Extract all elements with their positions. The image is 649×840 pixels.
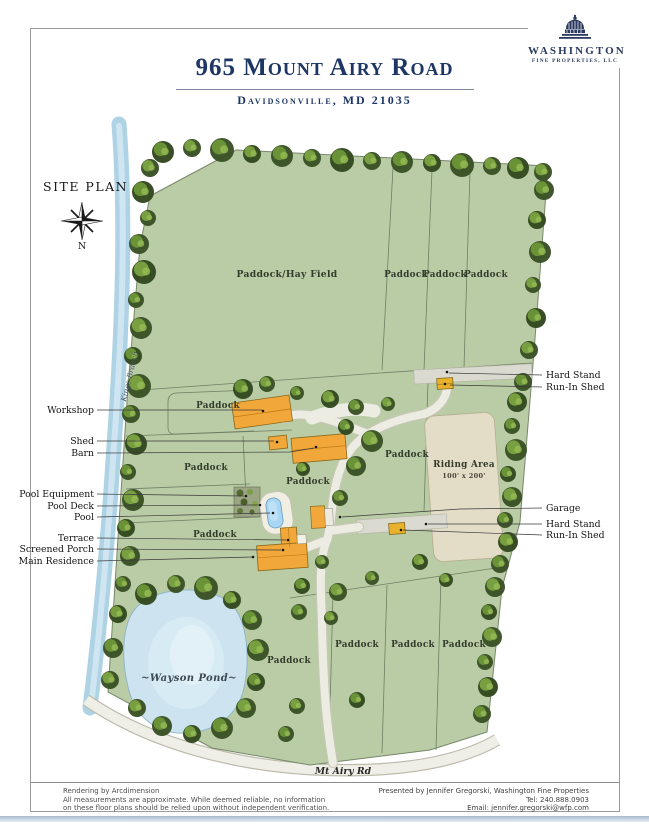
paddock-label: Paddock <box>464 270 508 280</box>
capitol-dome-icon <box>553 14 597 41</box>
tree <box>346 456 366 476</box>
tree <box>122 489 144 511</box>
tree <box>278 726 294 742</box>
paddock-label: Paddock <box>267 656 311 666</box>
tree <box>315 555 329 569</box>
tree <box>514 373 532 391</box>
tree <box>526 308 546 328</box>
compass-rose-icon <box>61 202 103 240</box>
tree <box>412 554 428 570</box>
tree <box>439 573 453 587</box>
hay-field-label: Paddock/Hay Field <box>237 269 338 280</box>
tree <box>125 433 147 455</box>
callout-terrace: Terrace <box>58 533 95 544</box>
tree <box>128 699 146 717</box>
tree <box>365 571 379 585</box>
tree <box>483 157 501 175</box>
tree <box>183 725 201 743</box>
tree <box>329 583 347 601</box>
tree <box>141 159 159 177</box>
callout-pool-deck: Pool Deck <box>47 501 94 512</box>
footer-line: Rendering by Arcdimension <box>63 787 329 796</box>
paddock-label: Paddock <box>286 477 330 487</box>
callout-screened-porch: Screened Porch <box>19 544 94 555</box>
paddock-label: Paddock <box>335 640 379 650</box>
riding-area-label: Riding Area <box>433 460 495 470</box>
tree <box>534 180 554 200</box>
callout-barn: Barn <box>71 448 94 459</box>
tree <box>330 148 354 172</box>
tree <box>211 717 233 739</box>
tree <box>294 578 310 594</box>
tree <box>290 386 304 400</box>
callout-hard-stand-lower: Hard Stand <box>546 519 601 530</box>
tree <box>525 277 541 293</box>
tree <box>152 716 172 736</box>
paddock-label: Paddock <box>391 640 435 650</box>
tree <box>233 379 253 399</box>
tree <box>247 639 269 661</box>
tree <box>505 439 527 461</box>
tree <box>473 705 491 723</box>
footer-disclaimer: Rendering by Arcdimension All measuremen… <box>63 787 329 813</box>
tree <box>117 519 135 537</box>
tree <box>504 418 520 434</box>
tree <box>481 604 497 620</box>
tree <box>183 139 201 157</box>
footer-line: on these floor plans should be relied up… <box>63 804 329 813</box>
tree <box>210 138 234 162</box>
tree <box>259 376 275 392</box>
tree <box>243 145 261 163</box>
callout-pool: Pool <box>74 512 94 523</box>
logo-tagline: FINE PROPERTIES, LLC <box>528 58 622 64</box>
paddock-label: Paddock <box>384 270 428 280</box>
tree <box>291 604 307 620</box>
tree <box>321 390 339 408</box>
footer-divider <box>31 782 619 783</box>
footer-contact: Presented by Jennifer Gregorski, Washing… <box>379 787 589 813</box>
tree <box>128 292 144 308</box>
paddock-label: Paddock <box>196 401 240 411</box>
tree <box>194 576 218 600</box>
tree <box>497 512 513 528</box>
tree <box>129 234 149 254</box>
tree <box>271 145 293 167</box>
tree <box>391 151 413 173</box>
footer-email: Email: jennifer.gregorski@wfp.com <box>379 804 589 813</box>
callout-pool-equipment: Pool Equipment <box>19 489 94 500</box>
barn-building <box>291 434 347 464</box>
tree <box>135 583 157 605</box>
paddock-label: Paddock <box>385 450 429 460</box>
tree <box>348 399 364 415</box>
garage-building <box>310 505 333 528</box>
footer-presented-by: Presented by Jennifer Gregorski, Washing… <box>379 787 589 796</box>
tree <box>534 163 552 181</box>
tree <box>303 149 321 167</box>
tree <box>338 419 354 435</box>
tree <box>363 152 381 170</box>
tree <box>140 210 156 226</box>
callout-main-residence: Main Residence <box>19 556 95 567</box>
site-plan-label: SITE PLAN <box>43 179 128 194</box>
tree <box>289 698 305 714</box>
tree <box>423 154 441 172</box>
brand-logo: WASHINGTON FINE PROPERTIES, LLC <box>528 14 622 68</box>
tree <box>500 466 516 482</box>
tree <box>152 141 174 163</box>
tree <box>132 181 154 203</box>
site-plan-drawing: SITE PLAN N Paddock/Hay Field Paddock Pa… <box>0 0 649 840</box>
page-bottom-shadow <box>0 816 649 822</box>
logo-name: WASHINGTON <box>528 45 622 57</box>
tree <box>381 397 395 411</box>
riding-area-size-label: 100' x 200' <box>442 472 485 480</box>
callout-hard-stand-upper: Hard Stand <box>546 370 601 381</box>
tree <box>247 673 265 691</box>
tree <box>477 654 493 670</box>
tree <box>109 605 127 623</box>
callout-run-in-shed-upper: Run-In Shed <box>546 382 605 393</box>
pool-equipment <box>234 487 260 517</box>
tree <box>507 392 527 412</box>
pond-label: ~Wayson Pond~ <box>141 673 237 684</box>
paddock-label: Paddock <box>184 463 228 473</box>
tree <box>528 211 546 229</box>
callout-run-in-shed-lower: Run-In Shed <box>546 530 605 541</box>
tree <box>478 677 498 697</box>
tree <box>507 157 529 179</box>
tree <box>491 555 509 573</box>
run-in-shed-lower <box>389 522 406 534</box>
riding-area <box>424 412 504 563</box>
tree <box>332 490 348 506</box>
tree <box>450 153 474 177</box>
tree <box>361 430 383 452</box>
compass-north-label: N <box>78 241 86 252</box>
tree <box>103 638 123 658</box>
tree <box>115 576 131 592</box>
tree <box>296 462 310 476</box>
callout-workshop: Workshop <box>47 405 94 416</box>
footer-line: All measurements are approximate. While … <box>63 796 329 805</box>
tree <box>498 532 518 552</box>
road-label: Mt Airy Rd <box>314 766 372 777</box>
tree <box>130 317 152 339</box>
tree <box>101 671 119 689</box>
paddock-label: Paddock <box>193 530 237 540</box>
footer-phone: Tel: 240.888.0903 <box>379 796 589 805</box>
tree <box>485 577 505 597</box>
tree <box>132 260 156 284</box>
tree <box>520 341 538 359</box>
tree <box>324 611 338 625</box>
tree <box>349 692 365 708</box>
tree <box>223 591 241 609</box>
callout-garage: Garage <box>546 503 581 514</box>
tree <box>122 405 140 423</box>
tree <box>242 610 262 630</box>
paddock-label: Paddock <box>423 270 467 280</box>
tree <box>167 575 185 593</box>
tree <box>502 487 522 507</box>
site-plan-page: 965 Mount Airy Road Davidsonville, MD 21… <box>0 0 649 840</box>
tree <box>120 464 136 480</box>
callout-shed: Shed <box>70 436 94 447</box>
tree <box>236 698 256 718</box>
tree <box>529 241 551 263</box>
paddock-label: Paddock <box>442 640 486 650</box>
